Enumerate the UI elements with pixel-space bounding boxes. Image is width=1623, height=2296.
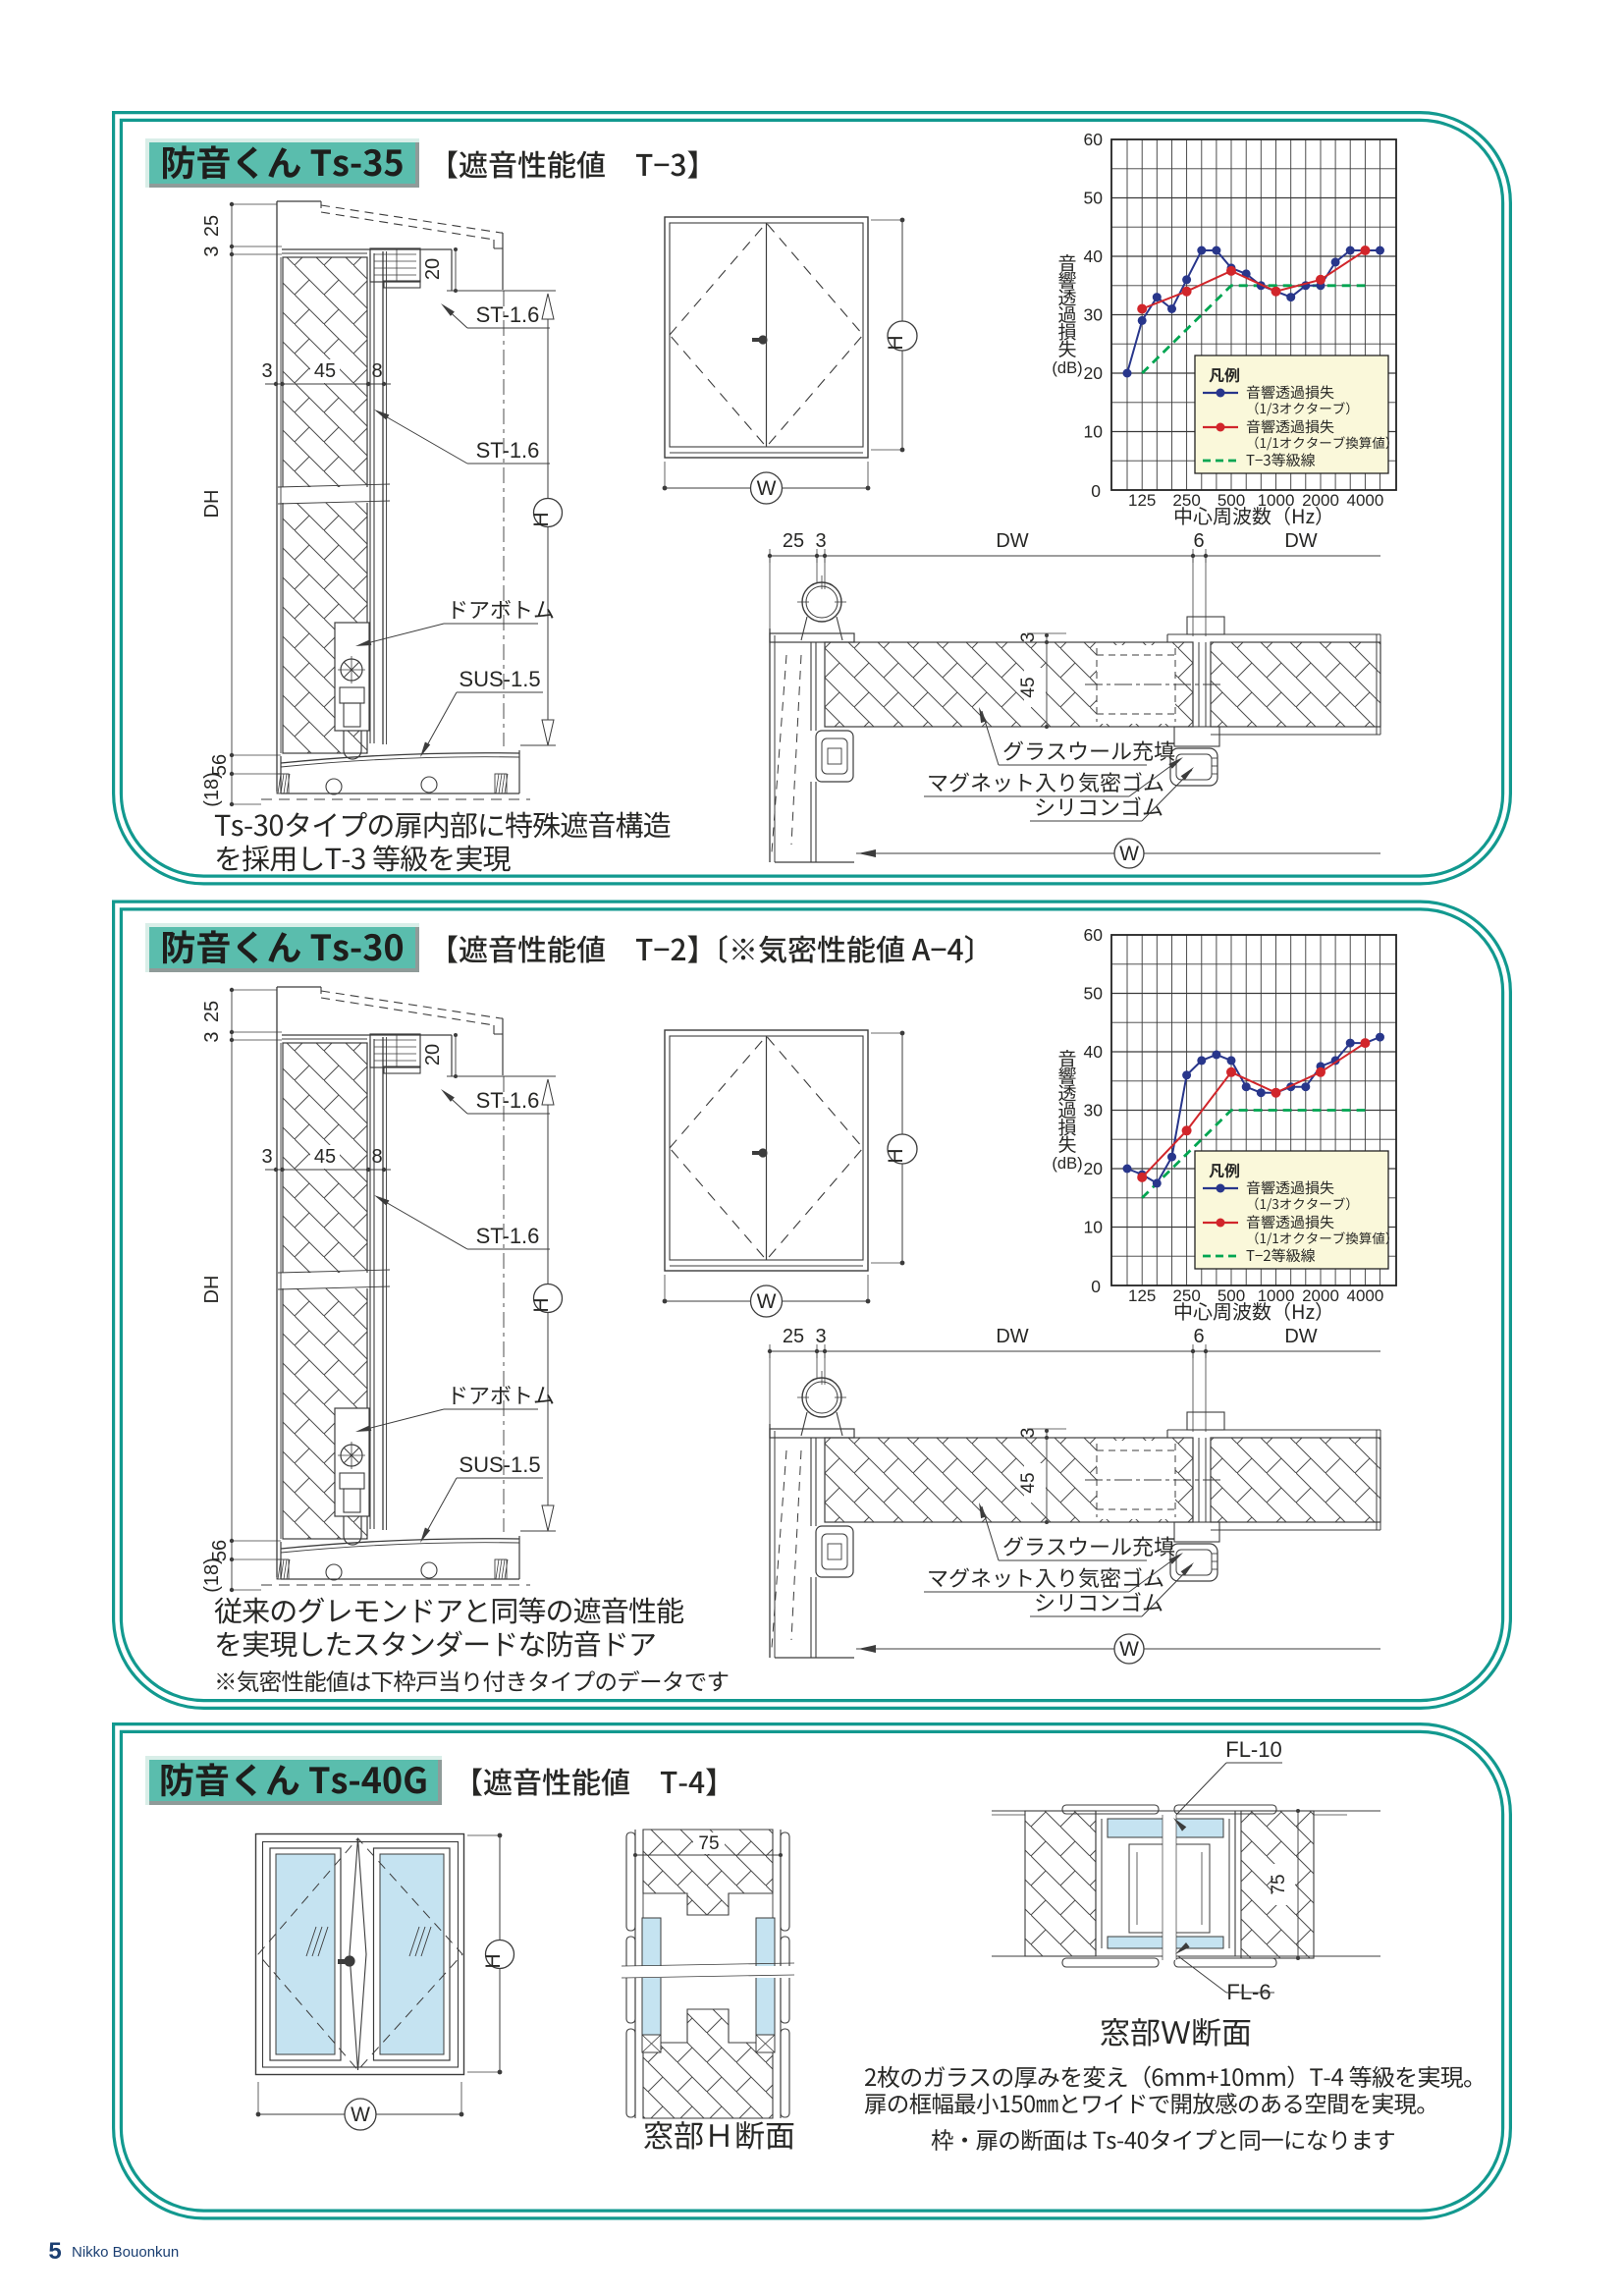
svg-text:50: 50 bbox=[1084, 984, 1104, 1004]
svg-text:10: 10 bbox=[1084, 1218, 1104, 1237]
svg-text:W: W bbox=[757, 477, 777, 500]
svg-text:75: 75 bbox=[1269, 1874, 1289, 1894]
svg-text:H: H bbox=[530, 1297, 553, 1312]
svg-text:40: 40 bbox=[1084, 246, 1104, 266]
svg-text:0: 0 bbox=[1091, 1277, 1101, 1296]
svg-text:250: 250 bbox=[1172, 1286, 1200, 1305]
svg-text:25: 25 bbox=[201, 1001, 223, 1022]
svg-text:ST-1.6: ST-1.6 bbox=[476, 1088, 540, 1113]
svg-text:DW: DW bbox=[1284, 530, 1317, 552]
svg-text:25: 25 bbox=[783, 530, 804, 552]
svg-text:6: 6 bbox=[1193, 1326, 1204, 1347]
svg-text:H: H bbox=[530, 512, 553, 526]
svg-text:DW: DW bbox=[1284, 1326, 1317, 1347]
svg-text:500: 500 bbox=[1217, 491, 1245, 510]
svg-text:W: W bbox=[351, 2104, 370, 2126]
svg-text:10: 10 bbox=[1084, 422, 1104, 442]
svg-text:2000: 2000 bbox=[1302, 491, 1339, 510]
svg-text:125: 125 bbox=[1128, 491, 1156, 510]
svg-text:60: 60 bbox=[1084, 925, 1104, 945]
svg-text:Nikko Bouonkun: Nikko Bouonkun bbox=[72, 2244, 179, 2261]
svg-text:3: 3 bbox=[201, 246, 223, 256]
svg-text:SUS-1.5: SUS-1.5 bbox=[459, 667, 540, 691]
svg-text:SUS-1.5: SUS-1.5 bbox=[459, 1452, 540, 1477]
svg-text:6: 6 bbox=[1193, 530, 1204, 552]
svg-text:20: 20 bbox=[422, 1044, 444, 1066]
svg-text:DH: DH bbox=[201, 490, 223, 519]
svg-text:H: H bbox=[885, 335, 907, 350]
svg-text:(18): (18) bbox=[201, 1558, 223, 1593]
svg-text:DH: DH bbox=[201, 1276, 223, 1304]
svg-text:W: W bbox=[1119, 1638, 1139, 1661]
svg-text:FL-10: FL-10 bbox=[1225, 1737, 1281, 1762]
svg-text:(18): (18) bbox=[201, 772, 223, 807]
svg-text:3: 3 bbox=[815, 530, 826, 552]
svg-text:3: 3 bbox=[261, 1146, 272, 1168]
svg-text:20: 20 bbox=[422, 258, 444, 280]
svg-text:75: 75 bbox=[698, 1833, 719, 1854]
svg-text:ST-1.6: ST-1.6 bbox=[476, 1224, 540, 1248]
svg-text:45: 45 bbox=[314, 360, 336, 382]
svg-text:3: 3 bbox=[815, 1326, 826, 1347]
svg-text:(dB): (dB) bbox=[1052, 1155, 1082, 1173]
svg-text:DW: DW bbox=[996, 1326, 1028, 1347]
svg-text:W: W bbox=[757, 1290, 777, 1313]
svg-text:5: 5 bbox=[48, 2238, 61, 2265]
svg-text:25: 25 bbox=[201, 215, 223, 237]
svg-text:DW: DW bbox=[996, 530, 1028, 552]
svg-text:250: 250 bbox=[1172, 491, 1200, 510]
svg-text:8: 8 bbox=[371, 1146, 382, 1168]
svg-text:ST-1.6: ST-1.6 bbox=[476, 302, 540, 327]
svg-text:2000: 2000 bbox=[1302, 1286, 1339, 1305]
svg-text:40: 40 bbox=[1084, 1042, 1104, 1062]
svg-text:8: 8 bbox=[371, 360, 382, 382]
svg-text:W: W bbox=[1119, 843, 1139, 865]
svg-text:125: 125 bbox=[1128, 1286, 1156, 1305]
svg-text:45: 45 bbox=[1018, 677, 1039, 697]
svg-text:30: 30 bbox=[1084, 305, 1104, 325]
svg-text:20: 20 bbox=[1084, 363, 1104, 383]
svg-text:45: 45 bbox=[1018, 1472, 1039, 1493]
svg-text:ST-1.6: ST-1.6 bbox=[476, 438, 540, 463]
svg-text:45: 45 bbox=[314, 1146, 336, 1168]
svg-text:50: 50 bbox=[1084, 189, 1104, 208]
svg-text:4000: 4000 bbox=[1346, 1286, 1383, 1305]
svg-text:60: 60 bbox=[1084, 130, 1104, 149]
svg-text:4000: 4000 bbox=[1346, 491, 1383, 510]
svg-text:3: 3 bbox=[261, 360, 272, 382]
svg-text:20: 20 bbox=[1084, 1159, 1104, 1178]
svg-text:30: 30 bbox=[1084, 1101, 1104, 1121]
svg-text:0: 0 bbox=[1091, 481, 1101, 501]
svg-text:H: H bbox=[482, 1953, 505, 1968]
svg-text:500: 500 bbox=[1217, 1286, 1245, 1305]
svg-text:(dB): (dB) bbox=[1052, 359, 1082, 377]
svg-text:H: H bbox=[885, 1148, 907, 1163]
svg-text:3: 3 bbox=[201, 1031, 223, 1042]
svg-text:25: 25 bbox=[783, 1326, 804, 1347]
